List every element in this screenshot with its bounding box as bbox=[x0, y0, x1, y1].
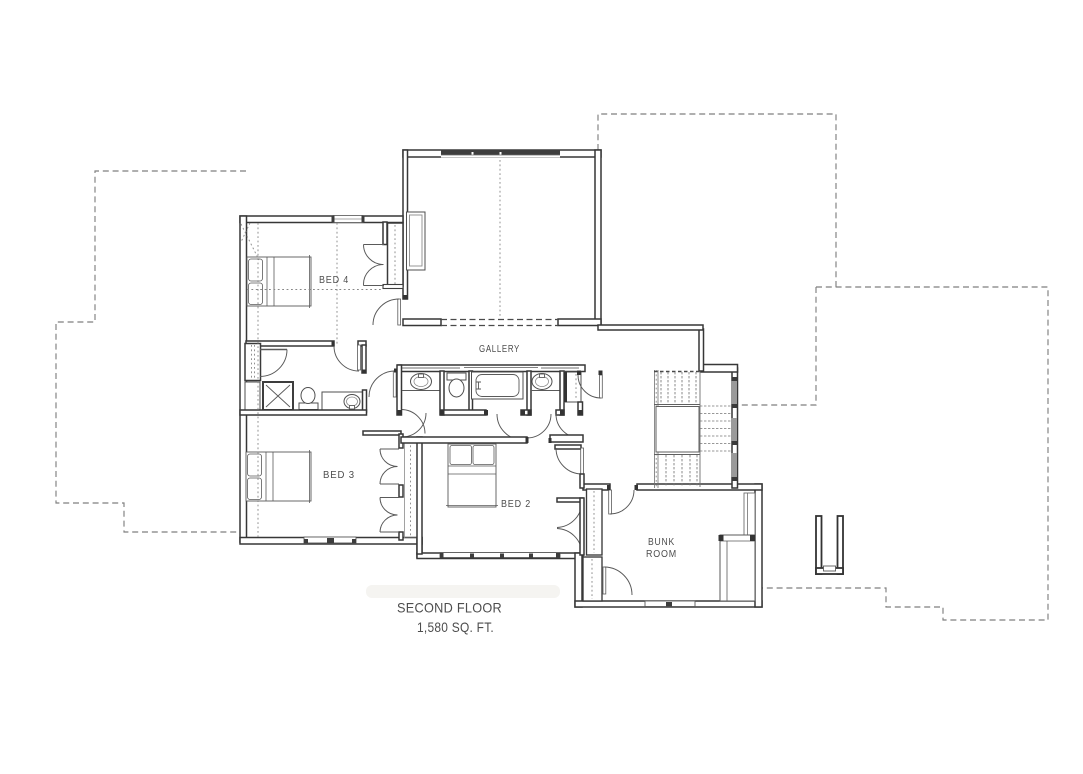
svg-text:GALLERY: GALLERY bbox=[479, 343, 520, 355]
svg-text:BUNK: BUNK bbox=[648, 537, 675, 548]
svg-text:BED 3: BED 3 bbox=[323, 470, 355, 481]
svg-text:SECOND FLOOR: SECOND FLOOR bbox=[397, 600, 502, 616]
svg-text:ROOM: ROOM bbox=[646, 549, 677, 560]
svg-text:1,580 SQ. FT.: 1,580 SQ. FT. bbox=[417, 619, 494, 635]
svg-text:BED 4: BED 4 bbox=[319, 275, 349, 286]
svg-text:BED 2: BED 2 bbox=[501, 499, 531, 510]
